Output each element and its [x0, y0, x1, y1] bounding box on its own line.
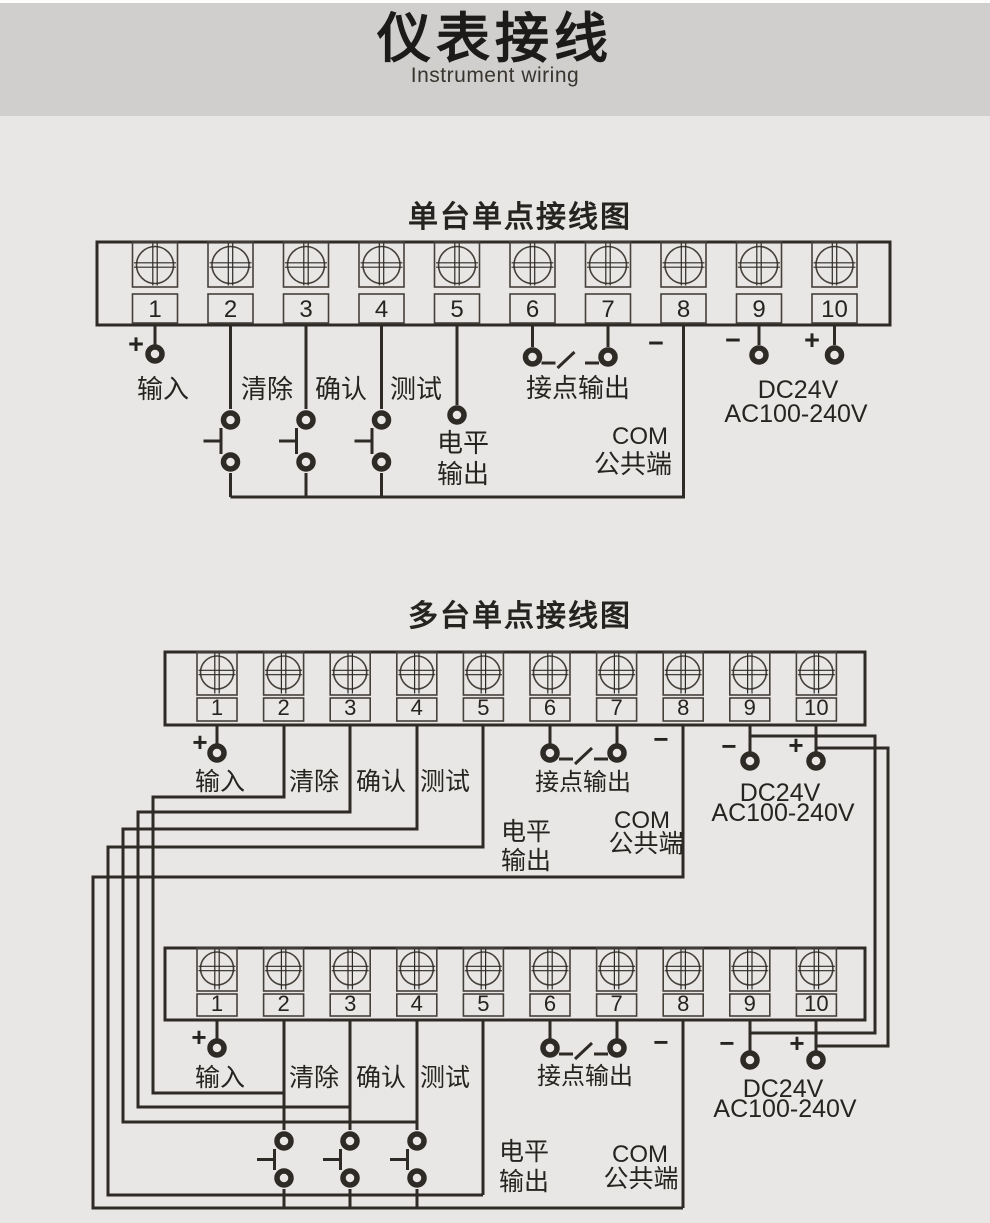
screw-icon: [534, 952, 567, 985]
terminal-number: 9: [744, 695, 756, 720]
polarity-sign: +: [804, 325, 820, 355]
wire-label: 接点输出: [526, 373, 630, 403]
diagram-title: 单台单点接线图: [408, 200, 632, 234]
connection-ring: [610, 1041, 624, 1055]
connection-ring: [610, 746, 624, 760]
wire-label: 测试: [420, 1064, 470, 1092]
terminal-number: 4: [375, 296, 388, 323]
terminal-number: 7: [610, 695, 622, 720]
connection-ring: [277, 1171, 291, 1185]
polarity-sign: +: [191, 1022, 206, 1052]
screw-icon: [439, 247, 476, 284]
screw-icon: [800, 952, 833, 985]
wire-label: 接点输出: [537, 1063, 633, 1090]
screw-icon: [400, 952, 433, 985]
terminal-number: 7: [601, 296, 614, 323]
screw-icon: [334, 952, 367, 985]
terminal-number: 8: [677, 296, 690, 323]
connection-ring: [224, 413, 238, 427]
terminal-number: 1: [211, 695, 223, 720]
connection-ring: [543, 746, 557, 760]
screw-icon: [467, 656, 500, 689]
screw-icon: [467, 952, 500, 985]
terminal-number: 8: [677, 991, 689, 1016]
terminal-number: 1: [211, 991, 223, 1016]
terminal-number: 1: [148, 296, 161, 323]
wire-label: 输出: [499, 1168, 549, 1196]
polarity-sign: −: [648, 328, 664, 358]
contact-switch: [575, 1043, 592, 1059]
connection-ring: [752, 348, 766, 362]
connection-ring: [343, 1171, 357, 1185]
screw-cell: [510, 242, 555, 287]
connection-ring: [299, 455, 313, 469]
screw-icon: [201, 656, 234, 689]
connection-ring: [410, 1171, 424, 1185]
contact-switch: [558, 352, 575, 368]
wire-label: 确认: [315, 374, 367, 404]
screw-icon: [741, 247, 778, 284]
wire-label: 公共端: [603, 1165, 678, 1193]
screw-icon: [733, 656, 766, 689]
screw-icon: [667, 952, 700, 985]
terminal-number: 5: [450, 296, 463, 323]
screw-icon: [288, 247, 325, 284]
polarity-sign: −: [653, 724, 668, 754]
polarity-sign: +: [788, 730, 803, 760]
screw-cell: [435, 242, 480, 287]
screw-icon: [667, 656, 700, 689]
terminal-number: 8: [677, 695, 689, 720]
polarity-sign: −: [725, 325, 741, 355]
wire-label: 清除: [289, 768, 339, 796]
wire-label: 接点输出: [535, 769, 631, 796]
polarity-sign: +: [789, 1028, 804, 1058]
wire-label: 确认: [356, 768, 406, 796]
screw-icon: [400, 656, 433, 689]
screw-cell: [737, 242, 782, 287]
wire-label: 清除: [289, 1064, 339, 1092]
wire-label: 输入: [195, 1064, 245, 1092]
wire-label: 清除: [241, 374, 293, 404]
wire-label: 输入: [137, 374, 189, 404]
screw-icon: [267, 656, 300, 689]
wire-label: 测试: [420, 768, 470, 796]
wire-label: 电平: [501, 818, 551, 846]
connection-ring: [210, 746, 224, 760]
terminal-number: 2: [277, 695, 289, 720]
screw-icon: [600, 656, 633, 689]
terminal-number: 6: [526, 296, 539, 323]
connection-ring: [148, 347, 162, 361]
screw-icon: [363, 247, 400, 284]
wire-label: 测试: [390, 374, 442, 404]
wire-label: AC100-240V: [713, 1095, 856, 1123]
terminal-number: 2: [277, 991, 289, 1016]
connection-ring: [343, 1134, 357, 1148]
screw-icon: [665, 247, 702, 284]
screw-icon: [137, 247, 174, 284]
screw-icon: [212, 247, 249, 284]
connection-ring: [809, 754, 823, 768]
terminal-number: 4: [411, 991, 423, 1016]
screw-icon: [201, 952, 234, 985]
terminal-number: 5: [477, 991, 489, 1016]
wire-label: COM: [612, 1141, 668, 1168]
connection-ring: [543, 1041, 557, 1055]
screw-icon: [816, 247, 853, 284]
connection-ring: [210, 1041, 224, 1055]
screw-icon: [600, 952, 633, 985]
terminal-number: 3: [344, 695, 356, 720]
wire-label: 输入: [195, 768, 245, 796]
polarity-sign: −: [721, 731, 736, 761]
terminal-number: 5: [477, 695, 489, 720]
screw-icon: [534, 656, 567, 689]
polarity-sign: +: [128, 329, 144, 359]
page: 仪表接线 Instrument wiring 单台单点接线图1234567891…: [0, 0, 990, 1223]
connection-ring: [743, 1053, 757, 1067]
screw-icon: [800, 656, 833, 689]
connection-ring: [828, 348, 842, 362]
wire-label: 输出: [501, 847, 551, 875]
terminal-number: 2: [224, 296, 237, 323]
wire-label: 电平: [499, 1138, 549, 1166]
screw-icon: [514, 247, 551, 284]
wiring-diagram-canvas: 单台单点接线图12345678910+输入清除确认测试电平输出接点输出−COM公…: [0, 0, 990, 1223]
connection-ring: [743, 754, 757, 768]
connection-ring: [410, 1134, 424, 1148]
connection-ring: [375, 413, 389, 427]
polarity-sign: −: [719, 1028, 734, 1058]
polarity-sign: +: [192, 727, 207, 757]
terminal-number: 7: [610, 991, 622, 1016]
terminal-number: 10: [804, 695, 828, 720]
terminal-number: 10: [821, 296, 848, 323]
diagram-title: 多台单点接线图: [408, 599, 632, 633]
connection-ring: [224, 455, 238, 469]
terminal-number: 3: [299, 296, 312, 323]
wire-label: COM: [612, 423, 668, 450]
screw-cell: [284, 242, 329, 287]
terminal-number: 3: [344, 991, 356, 1016]
wire-label: 输出: [437, 459, 489, 489]
wire-label: AC100-240V: [711, 799, 854, 827]
screw-icon: [267, 952, 300, 985]
terminal-number: 10: [804, 991, 828, 1016]
connection-ring: [450, 408, 464, 422]
wire-label: 电平: [437, 428, 489, 458]
screw-icon: [334, 656, 367, 689]
terminal-number: 9: [752, 296, 765, 323]
connection-ring: [809, 1053, 823, 1067]
terminal-number: 9: [744, 991, 756, 1016]
wire-label: 公共端: [608, 830, 683, 858]
terminal-number: 6: [544, 695, 556, 720]
screw-cell: [133, 242, 178, 287]
terminal-number: 4: [411, 695, 423, 720]
wire-label: 公共端: [594, 449, 672, 479]
terminal-number: 6: [544, 991, 556, 1016]
screw-cell: [812, 242, 857, 287]
connection-ring: [375, 455, 389, 469]
polarity-sign: −: [653, 1027, 668, 1057]
connection-ring: [526, 350, 540, 364]
screw-cell: [661, 242, 706, 287]
wire-label: AC100-240V: [724, 400, 867, 428]
screw-cell: [586, 242, 631, 287]
wire-label: 确认: [356, 1064, 406, 1092]
connection-ring: [277, 1134, 291, 1148]
contact-switch: [575, 748, 592, 764]
screw-icon: [590, 247, 627, 284]
screw-icon: [733, 952, 766, 985]
screw-cell: [208, 242, 253, 287]
connection-ring: [299, 413, 313, 427]
screw-cell: [359, 242, 404, 287]
connection-ring: [601, 350, 615, 364]
